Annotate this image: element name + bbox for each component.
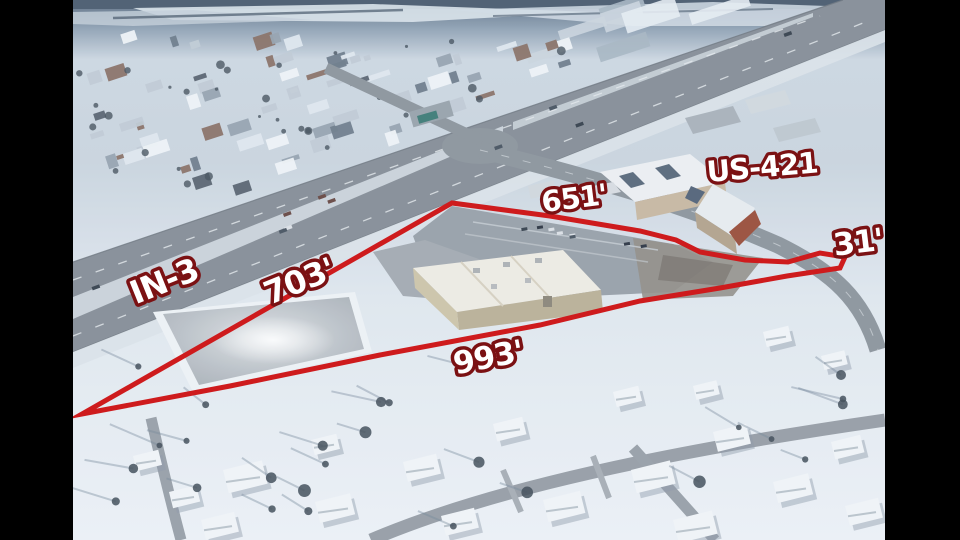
screenshot-stage: IN-3 703' 651' US-421 31' 993' (0, 0, 960, 540)
aerial-photo: IN-3 703' 651' US-421 31' 993' (73, 0, 885, 540)
letterbox-left (0, 0, 73, 540)
dimension-label-east: 31' (831, 222, 885, 264)
letterbox-right (885, 0, 960, 540)
